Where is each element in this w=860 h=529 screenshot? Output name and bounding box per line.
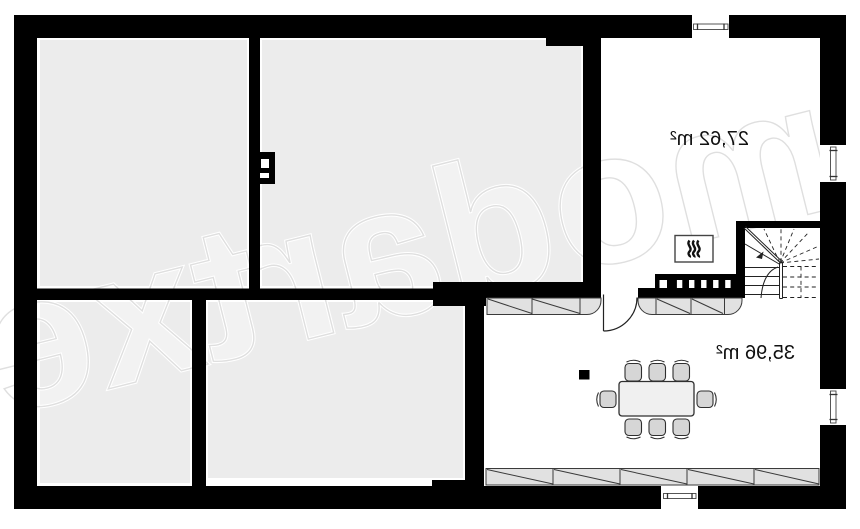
svg-text:35,96 m²: 35,96 m² (716, 342, 795, 364)
svg-text:27,62 m²: 27,62 m² (670, 128, 749, 150)
